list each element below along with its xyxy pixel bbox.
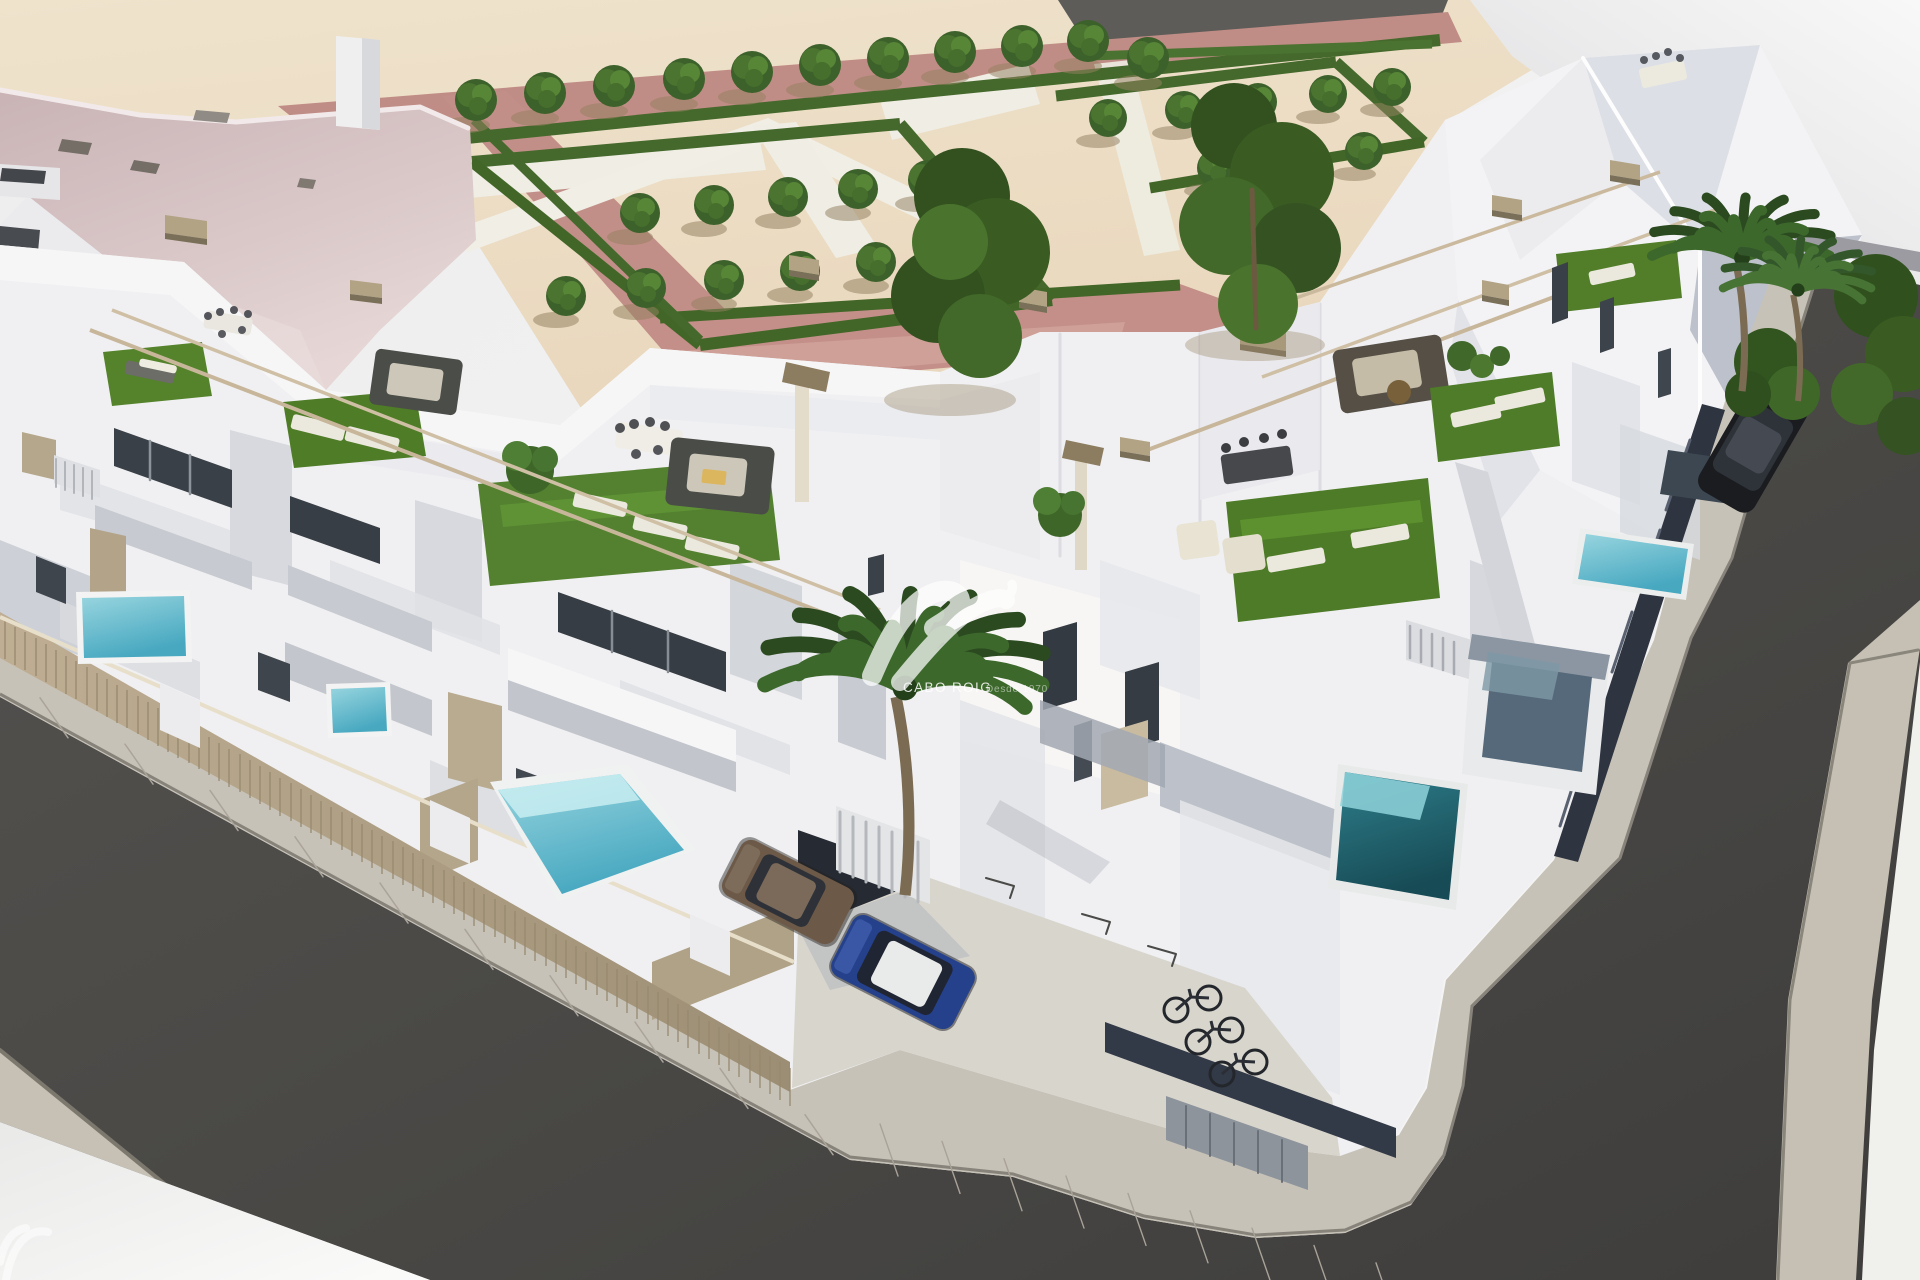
svg-text:CABO ROIG: CABO ROIG — [903, 680, 992, 695]
svg-text:Desde 1970: Desde 1970 — [986, 684, 1048, 695]
